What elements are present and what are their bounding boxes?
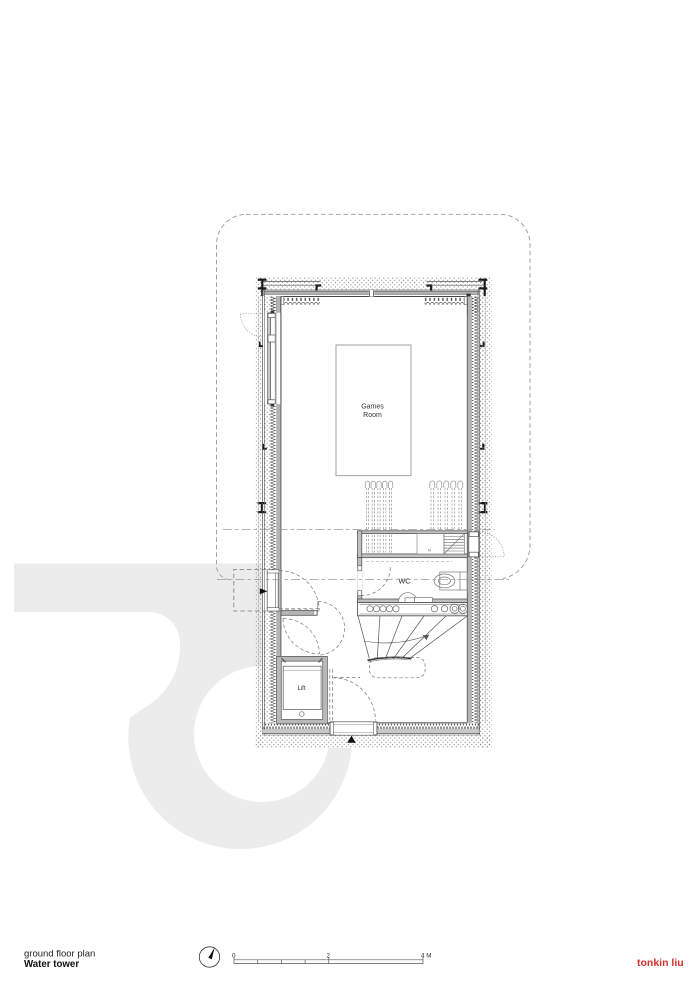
svg-text:Room: Room (363, 412, 382, 419)
svg-text:M: M (428, 549, 431, 553)
svg-text:tonkin liu: tonkin liu (637, 957, 684, 969)
svg-text:Lift: Lift (297, 686, 305, 692)
svg-text:Games: Games (361, 404, 384, 411)
svg-text:WC: WC (399, 577, 411, 586)
svg-text:0: 0 (232, 953, 236, 960)
svg-text:ground floor plan: ground floor plan (24, 949, 95, 960)
svg-text:Water tower: Water tower (24, 959, 79, 970)
svg-text:4 M: 4 M (421, 953, 432, 960)
svg-text:2: 2 (327, 953, 331, 960)
